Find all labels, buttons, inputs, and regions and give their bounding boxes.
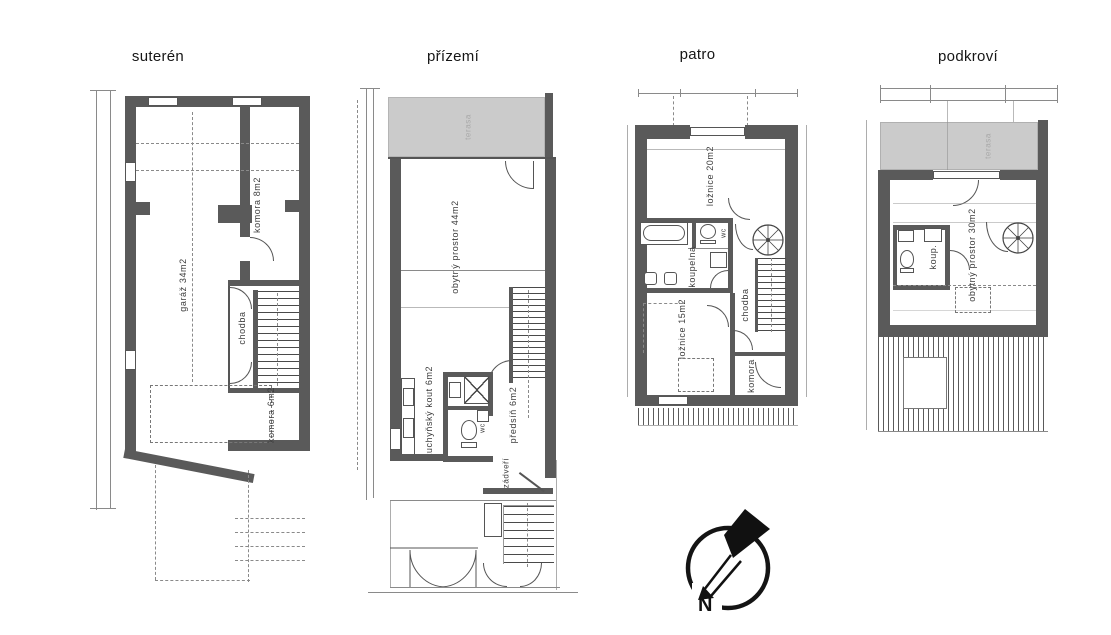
dim-line [947, 100, 948, 122]
dim-tick [1005, 85, 1006, 103]
floor-line [893, 310, 1036, 311]
dim-line [880, 88, 1058, 89]
wall [878, 170, 890, 332]
floor-title-podkrovi: podkroví [913, 48, 1023, 65]
wall [878, 170, 933, 180]
terrace-label: terasa [984, 133, 993, 159]
wall [1000, 170, 1048, 180]
toilet [900, 250, 914, 268]
dim-tick [880, 85, 881, 103]
dim-tick [930, 85, 931, 103]
floor-line [893, 203, 1036, 204]
plan-podkrovi: podkroví terasa koup. obytný prostor 30m… [0, 0, 1111, 635]
room-label-koup: koup. [928, 244, 938, 269]
boiler [924, 228, 942, 242]
terrace [880, 122, 1038, 170]
compass-rose: N [670, 498, 790, 633]
dim-line [880, 100, 1058, 101]
wall [893, 225, 897, 290]
dim-line [866, 120, 867, 430]
roof-edge [878, 431, 1048, 432]
wall [1036, 170, 1048, 332]
window-opening [933, 171, 1000, 179]
floorplan-sheet: suterén [0, 0, 1111, 635]
terrace-line [947, 122, 948, 170]
sink [898, 230, 914, 242]
dim-line [1013, 100, 1014, 122]
wall [878, 325, 1048, 337]
dim-tick [1057, 85, 1058, 103]
dashed-line [893, 285, 1036, 286]
wall [1038, 120, 1048, 172]
door-arc [986, 222, 1008, 252]
toilet-tank [900, 268, 914, 273]
skylight [903, 357, 947, 409]
